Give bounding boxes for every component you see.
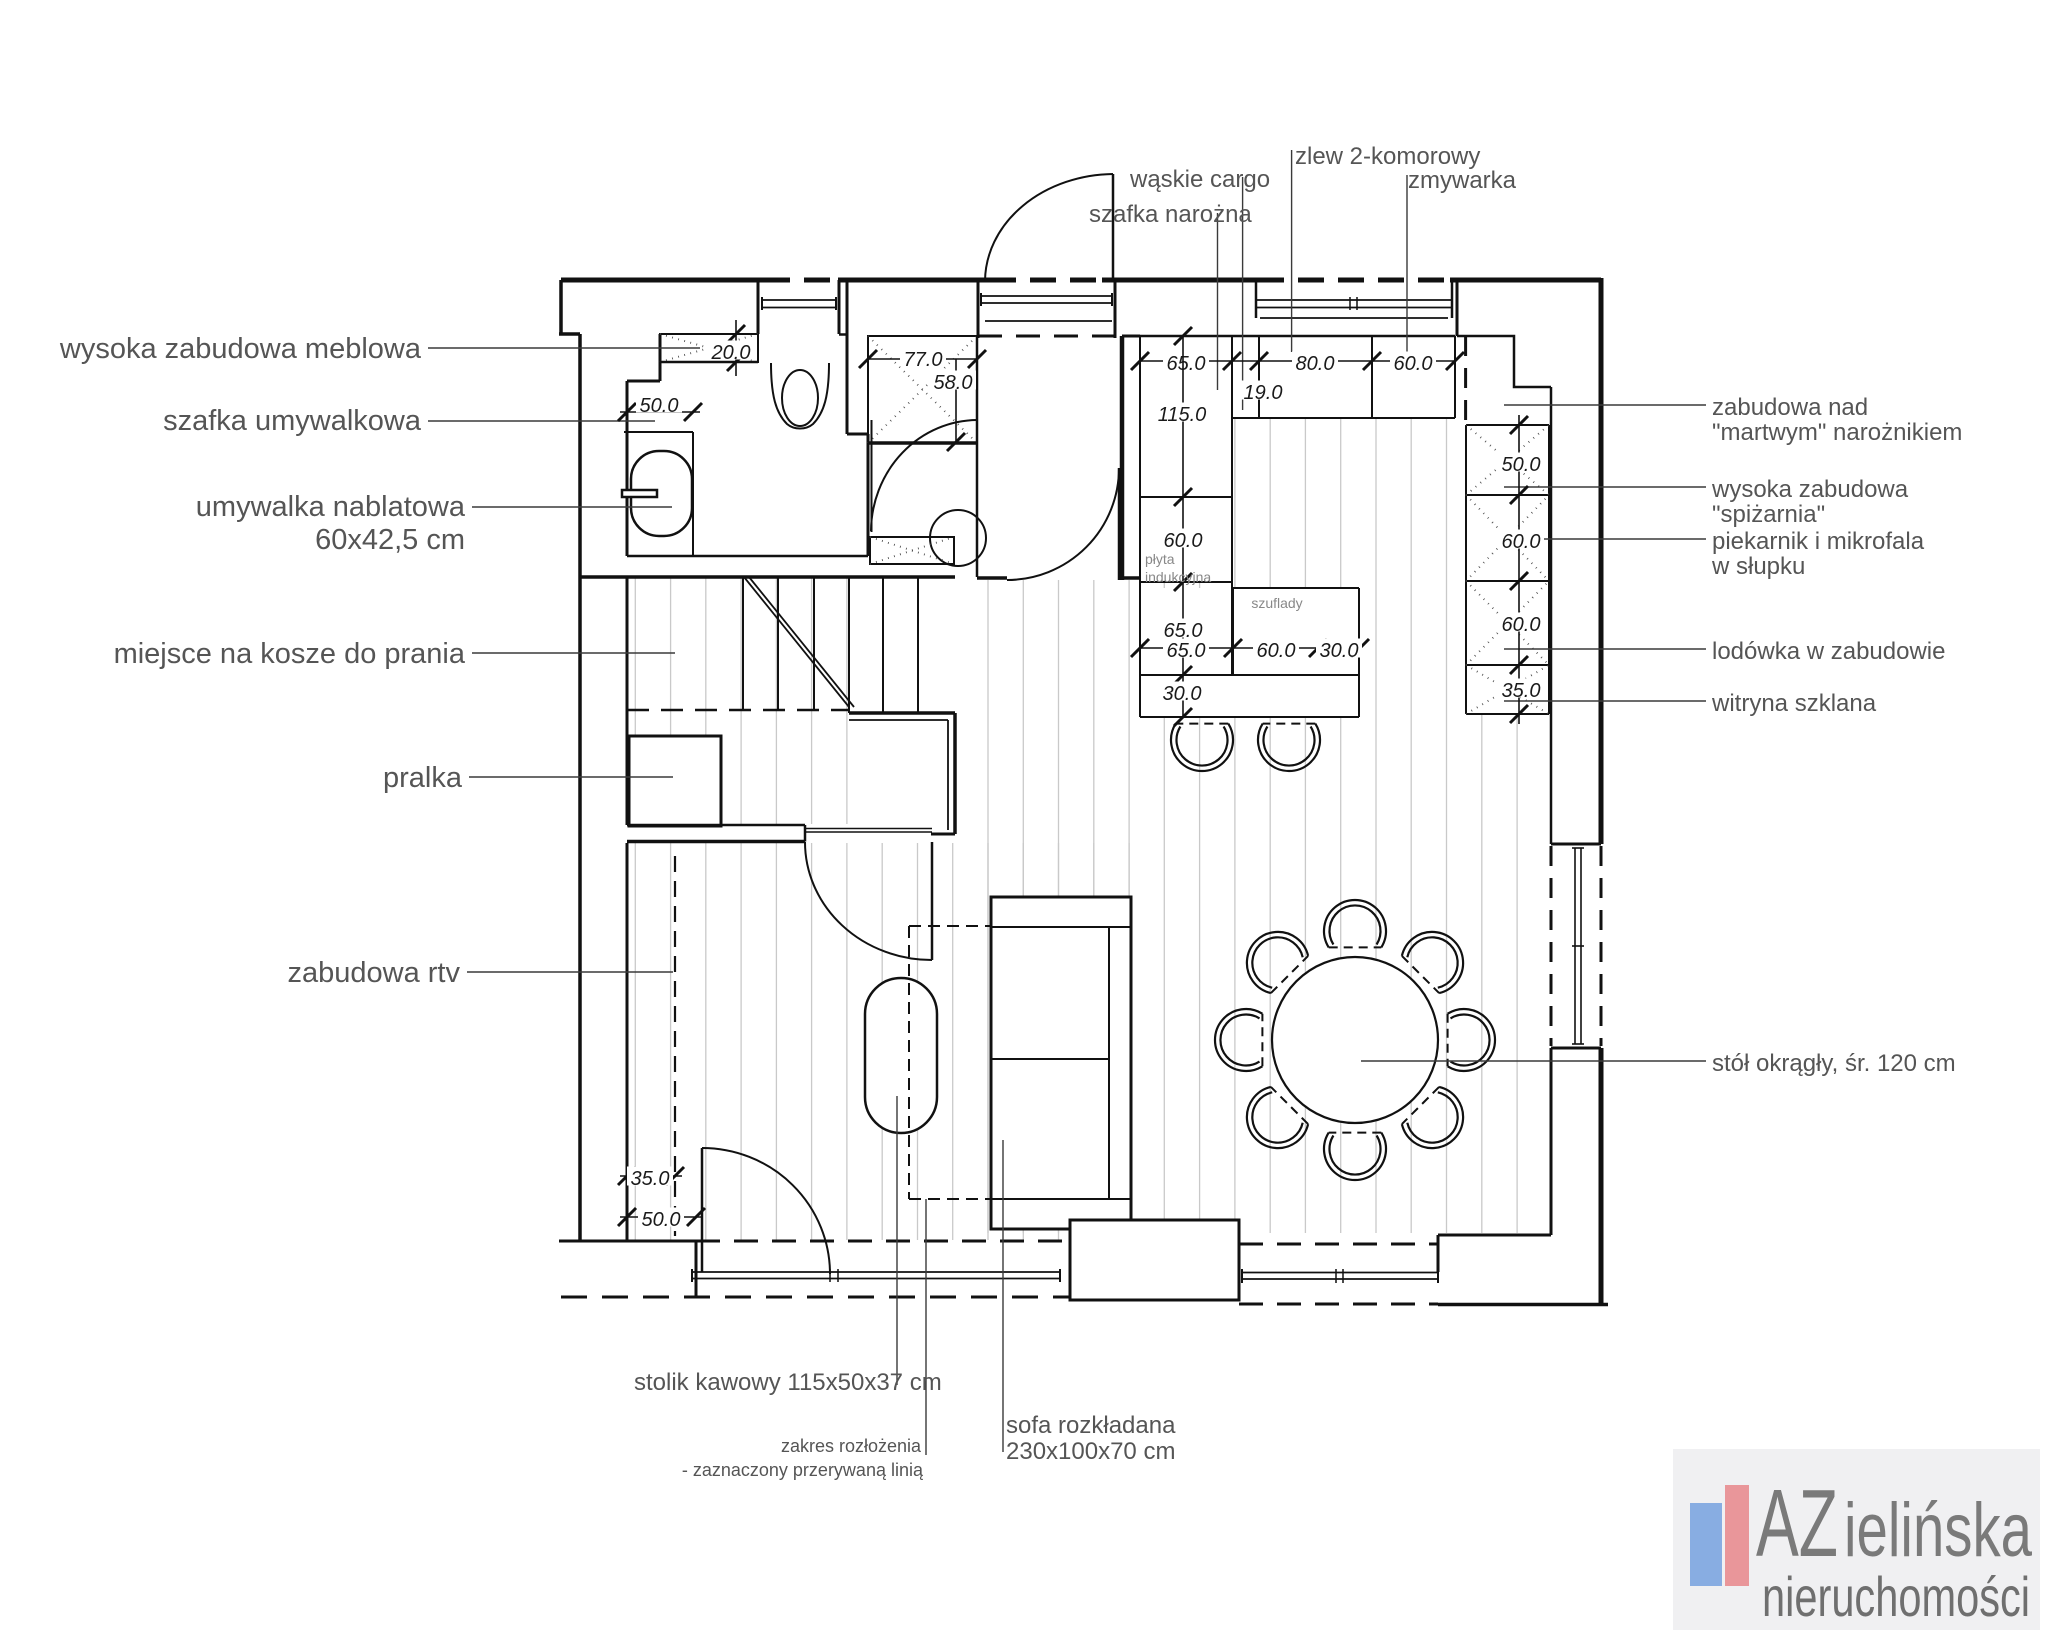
svg-text:- zaznaczony przerywaną linią: - zaznaczony przerywaną linią [682,1460,924,1480]
svg-text:20.0: 20.0 [711,342,751,364]
svg-text:szuflady: szuflady [1251,595,1302,611]
svg-text:35.0: 35.0 [631,1168,670,1190]
svg-text:230x100x70 cm: 230x100x70 cm [1006,1438,1175,1465]
svg-text:35.0: 35.0 [1502,680,1541,702]
svg-text:zakres rozłożenia: zakres rozłożenia [781,1436,922,1456]
svg-text:"martwym" narożnikiem: "martwym" narożnikiem [1712,419,1962,446]
svg-text:77.0: 77.0 [904,349,943,371]
svg-text:60.0: 60.0 [1394,353,1433,375]
svg-text:zlew 2-komorowy: zlew 2-komorowy [1295,143,1480,170]
svg-text:30.0: 30.0 [1163,683,1202,705]
svg-text:wąskie cargo: wąskie cargo [1129,166,1270,193]
svg-text:miejsce na kosze do prania: miejsce na kosze do prania [114,638,466,670]
svg-text:zmywarka: zmywarka [1408,167,1517,194]
svg-text:65.0: 65.0 [1167,640,1206,662]
svg-text:50.0: 50.0 [1502,454,1541,476]
svg-text:stół okrągły, śr. 120 cm: stół okrągły, śr. 120 cm [1712,1050,1956,1077]
svg-text:w słupku: w słupku [1711,553,1805,580]
svg-text:zabudowa rtv: zabudowa rtv [288,957,461,989]
svg-text:szafka narożna: szafka narożna [1089,201,1252,228]
svg-text:"spiżarnia": "spiżarnia" [1712,501,1825,528]
svg-text:60.0: 60.0 [1257,640,1296,662]
svg-text:stolik kawowy 115x50x37 cm: stolik kawowy 115x50x37 cm [634,1369,942,1396]
svg-text:szafka umywalkowa: szafka umywalkowa [163,405,422,437]
svg-text:witryna szklana: witryna szklana [1711,690,1877,717]
svg-text:sofa rozkładana: sofa rozkładana [1006,1412,1176,1439]
svg-text:nieruchomości: nieruchomości [1762,1565,2030,1628]
svg-text:19.0: 19.0 [1244,382,1283,404]
svg-text:50.0: 50.0 [642,1209,681,1231]
svg-text:115.0: 115.0 [1158,404,1207,426]
svg-text:60.0: 60.0 [1502,531,1541,553]
svg-text:AZ: AZ [1756,1470,1838,1577]
svg-text:60.0: 60.0 [1164,530,1203,552]
svg-text:60.0: 60.0 [1502,614,1541,636]
svg-text:50.0: 50.0 [640,395,679,417]
svg-text:80.0: 80.0 [1296,353,1335,375]
svg-text:58.0: 58.0 [934,372,973,394]
svg-text:65.0: 65.0 [1167,353,1206,375]
svg-text:piekarnik i mikrofala: piekarnik i mikrofala [1712,528,1925,555]
svg-text:ielińska: ielińska [1844,1488,2033,1573]
svg-text:wysoka zabudowa meblowa: wysoka zabudowa meblowa [59,333,422,365]
svg-text:płyta: płyta [1145,551,1175,567]
svg-text:umywalka nablatowa: umywalka nablatowa [196,491,466,523]
svg-text:zabudowa nad: zabudowa nad [1712,394,1868,421]
svg-text:lodówka w zabudowie: lodówka w zabudowie [1712,638,1945,665]
svg-text:wysoka zabudowa: wysoka zabudowa [1711,476,1909,503]
svg-text:30.0: 30.0 [1320,640,1359,662]
svg-text:pralka: pralka [383,762,463,794]
svg-text:indukcyjna: indukcyjna [1145,569,1211,585]
svg-text:60x42,5 cm: 60x42,5 cm [315,524,465,556]
